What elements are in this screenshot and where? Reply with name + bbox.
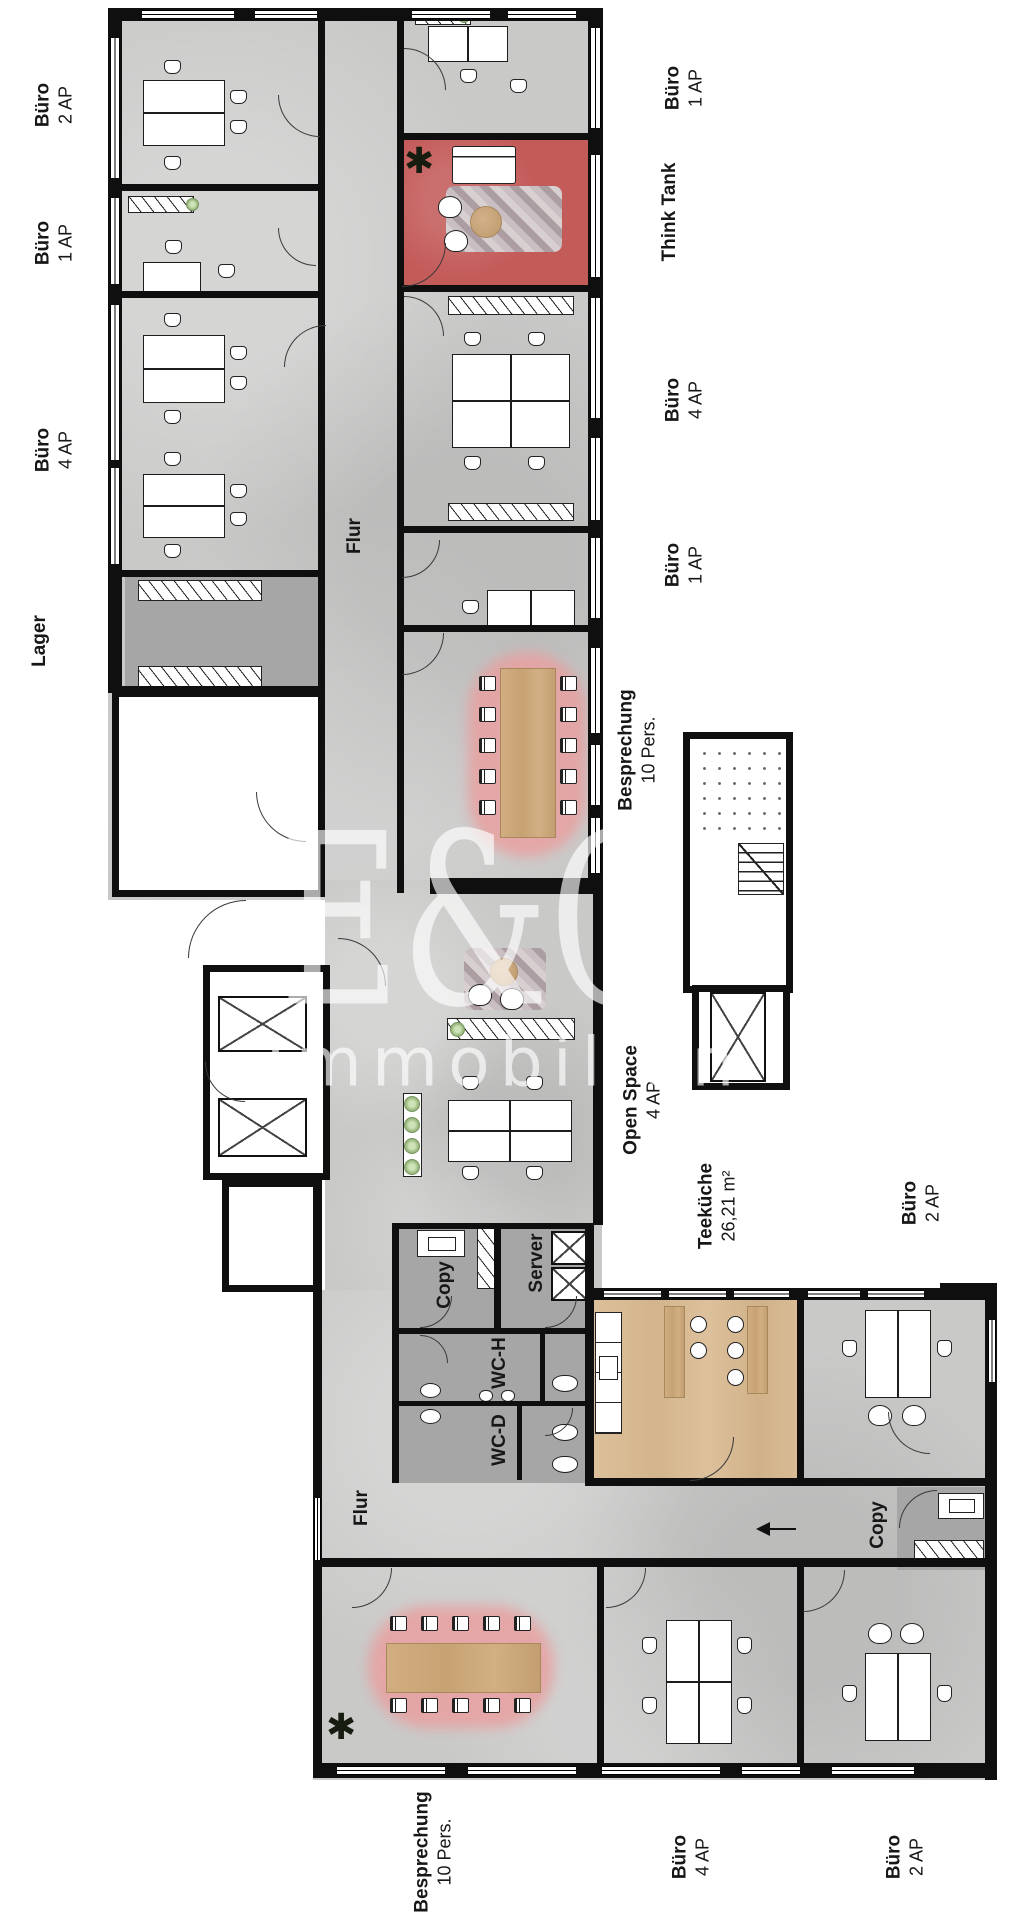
window xyxy=(337,1766,445,1775)
chair xyxy=(479,738,496,753)
storage-shelf xyxy=(138,580,262,601)
room-label-wc-h: WC-H xyxy=(489,1337,511,1389)
wall xyxy=(517,1405,522,1480)
chair xyxy=(164,156,181,170)
chair xyxy=(230,120,247,134)
meeting-table xyxy=(500,668,556,838)
wall xyxy=(797,1295,804,1485)
meeting-table xyxy=(386,1643,541,1693)
armchair xyxy=(468,984,492,1006)
desk xyxy=(448,1100,572,1162)
window xyxy=(314,1498,321,1560)
shaft-room xyxy=(222,1180,322,1292)
wall xyxy=(318,8,325,890)
chair xyxy=(479,707,496,722)
desk xyxy=(865,1310,931,1398)
wall xyxy=(397,8,404,893)
window xyxy=(734,1290,789,1298)
chair xyxy=(842,1340,857,1357)
armchair xyxy=(444,230,468,252)
chair xyxy=(479,800,496,815)
room-label-buero-2ap-e: Büro2 AP xyxy=(900,1181,945,1225)
wall xyxy=(392,1223,585,1229)
room-label-flur-lower: Flur xyxy=(351,1490,373,1526)
chair xyxy=(483,1616,500,1631)
window xyxy=(590,745,601,805)
chair xyxy=(526,1166,543,1180)
chair xyxy=(164,60,181,74)
chair xyxy=(462,600,479,614)
window xyxy=(590,28,601,128)
door-arc xyxy=(188,900,246,958)
wall xyxy=(397,1328,585,1334)
armchair xyxy=(500,988,524,1010)
window xyxy=(742,1766,800,1775)
wall xyxy=(112,686,322,693)
wall xyxy=(597,1567,604,1767)
desk xyxy=(487,590,575,628)
window xyxy=(602,1766,720,1775)
chair xyxy=(526,1076,543,1090)
chair xyxy=(483,1698,500,1713)
chair xyxy=(528,456,545,470)
room-label-lager: Lager xyxy=(29,615,51,667)
room-label-buero-4ap-w: Büro4 AP xyxy=(33,428,78,472)
room-label-buero-2ap-nw: Büro2 AP xyxy=(33,83,78,127)
chair xyxy=(642,1637,657,1654)
plant-icon: ✱ xyxy=(326,1710,356,1746)
stool xyxy=(690,1316,707,1333)
chair xyxy=(164,452,181,466)
wall xyxy=(392,1223,399,1483)
chair xyxy=(479,676,496,691)
room-label-buero-2ap-s: Büro2 AP xyxy=(884,1835,929,1879)
chair xyxy=(560,707,577,722)
sideboard xyxy=(448,503,574,521)
wall xyxy=(593,880,603,1225)
chair xyxy=(421,1698,438,1713)
wall xyxy=(540,1333,545,1403)
wall xyxy=(122,570,322,577)
window xyxy=(832,1766,914,1775)
plant-icon xyxy=(404,1159,420,1175)
shelf xyxy=(914,1540,984,1560)
chair xyxy=(560,769,577,784)
stairs-icon xyxy=(738,843,784,895)
window xyxy=(604,1290,661,1298)
room-label-open-space: Open Space4 AP xyxy=(621,1045,666,1155)
window xyxy=(669,1290,726,1298)
wall xyxy=(397,1401,585,1406)
stool xyxy=(727,1369,744,1386)
window xyxy=(508,10,576,19)
wall xyxy=(430,878,603,894)
room-label-server: Server xyxy=(526,1233,548,1292)
chair xyxy=(230,346,247,360)
room-label-flur-upper: Flur xyxy=(344,518,366,554)
window xyxy=(590,818,601,873)
desk-cluster xyxy=(444,1076,576,1186)
floor-plan: ✱ xyxy=(0,0,1012,1920)
sideboard xyxy=(448,296,574,315)
sofa xyxy=(452,146,516,184)
chair xyxy=(230,376,247,390)
kitchen-sink-icon xyxy=(599,1356,618,1380)
toilet-icon xyxy=(552,1456,578,1473)
stair-landing-dots xyxy=(692,741,784,841)
room-label-besprechung-s: Besprechung10 Pers. xyxy=(412,1791,457,1912)
room-label-teekueche: Teeküche26,21 m² xyxy=(696,1163,741,1249)
window xyxy=(868,1290,924,1298)
entrance-arrow-icon xyxy=(756,1522,770,1536)
chair xyxy=(560,738,577,753)
sink-icon xyxy=(420,1383,441,1398)
chair xyxy=(479,769,496,784)
plant-icon xyxy=(404,1096,420,1112)
desk-cluster xyxy=(446,326,578,474)
chair xyxy=(560,676,577,691)
chair xyxy=(165,240,182,254)
storage-shelf xyxy=(138,666,262,687)
chair xyxy=(460,69,477,83)
chair xyxy=(421,1616,438,1631)
wall xyxy=(494,1223,501,1328)
entrance-arrow-line xyxy=(770,1528,796,1530)
wall xyxy=(313,1180,322,1770)
chair xyxy=(464,456,481,470)
window xyxy=(255,10,317,19)
copier-icon xyxy=(417,1230,465,1257)
chair xyxy=(514,1616,531,1631)
plant-icon xyxy=(404,1117,420,1133)
window xyxy=(110,468,120,564)
stool xyxy=(690,1342,707,1359)
chair xyxy=(164,544,181,558)
chair xyxy=(737,1637,752,1654)
room-label-buero-4ap-e: Büro4 AP xyxy=(663,378,708,422)
room-label-wc-d: WC-D xyxy=(489,1414,511,1466)
room-label-buero-1ap-e: Büro1 AP xyxy=(663,543,708,587)
window xyxy=(988,1320,996,1382)
plant-icon xyxy=(404,1138,420,1154)
window xyxy=(590,438,601,520)
sideboard xyxy=(128,196,194,213)
chair xyxy=(230,512,247,526)
chair xyxy=(164,313,181,327)
chair xyxy=(390,1616,407,1631)
wall xyxy=(403,625,589,632)
room-label-besprechung-e: Besprechung10 Pers. xyxy=(616,689,661,810)
armchair xyxy=(900,1623,924,1644)
desk xyxy=(666,1620,732,1744)
desk-cluster xyxy=(140,310,260,428)
desk xyxy=(428,26,508,62)
chair xyxy=(218,264,235,278)
desk-cluster xyxy=(140,450,260,562)
round-table xyxy=(490,958,518,986)
desk xyxy=(865,1653,931,1741)
plant-icon: ✱ xyxy=(404,144,434,180)
desk xyxy=(143,335,225,403)
chair xyxy=(642,1697,657,1714)
wall xyxy=(122,184,322,191)
wall xyxy=(403,133,589,140)
chair xyxy=(390,1698,407,1713)
stool xyxy=(727,1342,744,1359)
window xyxy=(590,155,601,277)
desk xyxy=(143,80,225,146)
desk-cluster xyxy=(640,1612,755,1750)
stool xyxy=(727,1316,744,1333)
room-label-buero-1ap-ne: Büro1 AP xyxy=(663,66,708,110)
sideboard xyxy=(447,1018,575,1040)
chair xyxy=(937,1685,952,1702)
window xyxy=(110,38,120,178)
window xyxy=(142,10,234,19)
window xyxy=(590,648,601,733)
room-label-think-tank: Think Tank xyxy=(659,163,681,262)
wall xyxy=(313,1558,997,1567)
window xyxy=(468,1766,576,1775)
wall xyxy=(585,1478,997,1486)
room-label-copy-lower: Copy xyxy=(867,1501,889,1549)
desk xyxy=(452,354,570,448)
room-label-buero-1ap-w: Büro1 AP xyxy=(33,221,78,265)
chair xyxy=(510,79,527,93)
chair xyxy=(528,332,545,346)
server-rack-icon xyxy=(551,1231,588,1265)
wall xyxy=(403,526,589,533)
window xyxy=(412,10,490,19)
chair xyxy=(737,1697,752,1714)
chair xyxy=(462,1076,479,1090)
wall xyxy=(403,285,589,292)
window xyxy=(590,538,601,618)
wall xyxy=(585,1223,594,1483)
room-label-buero-4ap-s: Büro4 AP xyxy=(670,1835,715,1879)
elevator-icon xyxy=(218,1098,307,1157)
window xyxy=(590,298,601,418)
high-table xyxy=(664,1306,685,1398)
high-table xyxy=(747,1306,768,1394)
chair xyxy=(164,410,181,424)
chair xyxy=(464,332,481,346)
plant-icon xyxy=(450,1022,465,1037)
chair xyxy=(842,1685,857,1702)
window xyxy=(110,305,120,460)
room-label-copy-upper: Copy xyxy=(434,1261,456,1309)
round-table xyxy=(470,206,502,238)
chair xyxy=(452,1698,469,1713)
chair xyxy=(560,800,577,815)
chair xyxy=(514,1698,531,1713)
desk-cluster xyxy=(840,1615,960,1747)
elevator-icon xyxy=(218,996,307,1052)
armchair xyxy=(438,196,462,218)
desk-cluster xyxy=(140,58,260,173)
copier-icon xyxy=(938,1493,984,1519)
wall xyxy=(122,291,322,298)
desk-cluster xyxy=(126,194,261,296)
chair xyxy=(230,90,247,104)
sink-icon xyxy=(420,1409,441,1424)
chair xyxy=(937,1340,952,1357)
armchair xyxy=(868,1623,892,1644)
window xyxy=(110,198,120,284)
elevator-icon xyxy=(710,992,766,1082)
chair xyxy=(230,484,247,498)
plant-icon xyxy=(186,198,199,211)
toilet-icon xyxy=(552,1375,578,1392)
desk xyxy=(143,474,225,538)
chair xyxy=(452,1616,469,1631)
chair xyxy=(462,1166,479,1180)
desk xyxy=(143,262,201,293)
window xyxy=(808,1290,860,1298)
